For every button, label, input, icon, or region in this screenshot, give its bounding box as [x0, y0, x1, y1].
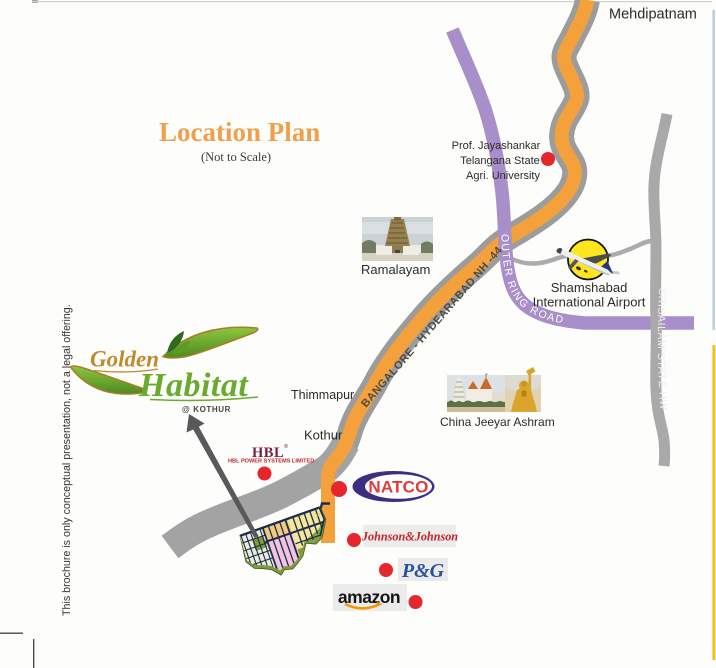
- svg-text:Ramalayam: Ramalayam: [361, 262, 430, 277]
- svg-text:Thimmapur: Thimmapur: [291, 388, 354, 402]
- svg-text:This brochure is only conceptu: This brochure is only conceptual present…: [61, 304, 73, 616]
- svg-text:Prof. Jayashankar: Prof. Jayashankar: [452, 140, 541, 152]
- svg-text:Location Plan: Location Plan: [159, 117, 320, 147]
- svg-text:NATCO: NATCO: [368, 478, 428, 497]
- svg-text:Telangana State: Telangana State: [460, 155, 540, 167]
- svg-text:Johnson&Johnson: Johnson&Johnson: [361, 530, 458, 544]
- svg-text:China Jeeyar Ashram: China Jeeyar Ashram: [440, 415, 555, 429]
- svg-text:P&G: P&G: [401, 560, 445, 582]
- svg-text:Mehdipatnam: Mehdipatnam: [609, 7, 697, 23]
- svg-text:International Airport: International Airport: [533, 295, 646, 310]
- svg-text:Kothur: Kothur: [304, 428, 343, 443]
- svg-text:®: ®: [284, 443, 288, 450]
- svg-text:(Not to Scale): (Not to Scale): [201, 150, 271, 164]
- svg-text:Shamshabad: Shamshabad: [551, 280, 628, 295]
- svg-text:@ KOTHUR: @ KOTHUR: [182, 405, 231, 414]
- svg-text:Agri. University: Agri. University: [466, 170, 540, 182]
- svg-text:HBL POWER SYSTEMS LIMITED: HBL POWER SYSTEMS LIMITED: [228, 459, 314, 465]
